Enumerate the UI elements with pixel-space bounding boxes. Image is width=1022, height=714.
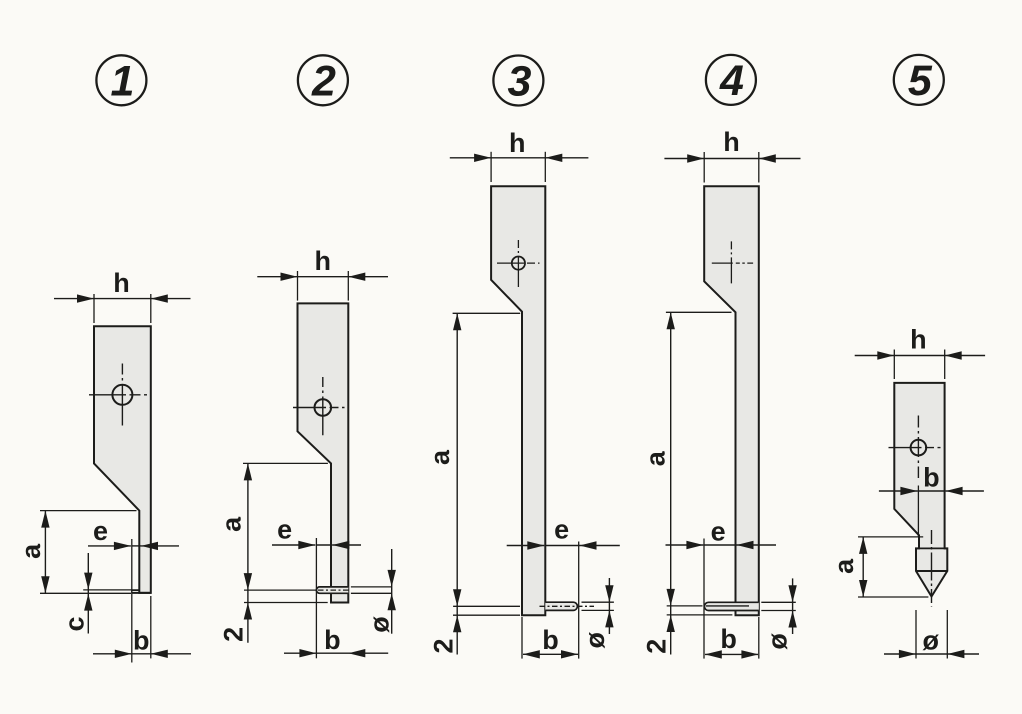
- svg-text:h: h: [910, 325, 927, 355]
- svg-text:b: b: [133, 626, 150, 656]
- svg-text:b: b: [923, 463, 940, 493]
- svg-text:b: b: [720, 624, 737, 654]
- svg-text:h: h: [314, 246, 331, 276]
- svg-text:ø: ø: [923, 625, 940, 655]
- svg-text:2: 2: [311, 57, 336, 105]
- svg-text:e: e: [554, 515, 569, 545]
- svg-text:a: a: [425, 449, 455, 465]
- svg-text:4: 4: [719, 57, 744, 105]
- svg-text:ø: ø: [364, 616, 394, 633]
- svg-text:ø: ø: [580, 632, 610, 649]
- svg-text:h: h: [113, 268, 130, 298]
- svg-text:e: e: [93, 516, 108, 546]
- svg-text:2: 2: [429, 638, 459, 653]
- svg-text:a: a: [829, 558, 859, 574]
- svg-text:3: 3: [507, 58, 531, 106]
- svg-text:1: 1: [110, 57, 134, 105]
- svg-text:e: e: [711, 517, 726, 547]
- svg-text:a: a: [217, 516, 247, 532]
- svg-text:2: 2: [219, 627, 249, 642]
- svg-text:ø: ø: [762, 633, 792, 650]
- svg-text:e: e: [277, 515, 292, 545]
- svg-text:h: h: [723, 127, 740, 157]
- svg-text:b: b: [542, 625, 559, 655]
- svg-text:c: c: [59, 616, 89, 631]
- svg-text:a: a: [641, 450, 671, 466]
- svg-text:h: h: [509, 128, 526, 158]
- svg-text:2: 2: [641, 639, 671, 654]
- svg-text:a: a: [16, 543, 46, 559]
- svg-text:b: b: [324, 625, 341, 655]
- svg-text:5: 5: [908, 57, 933, 105]
